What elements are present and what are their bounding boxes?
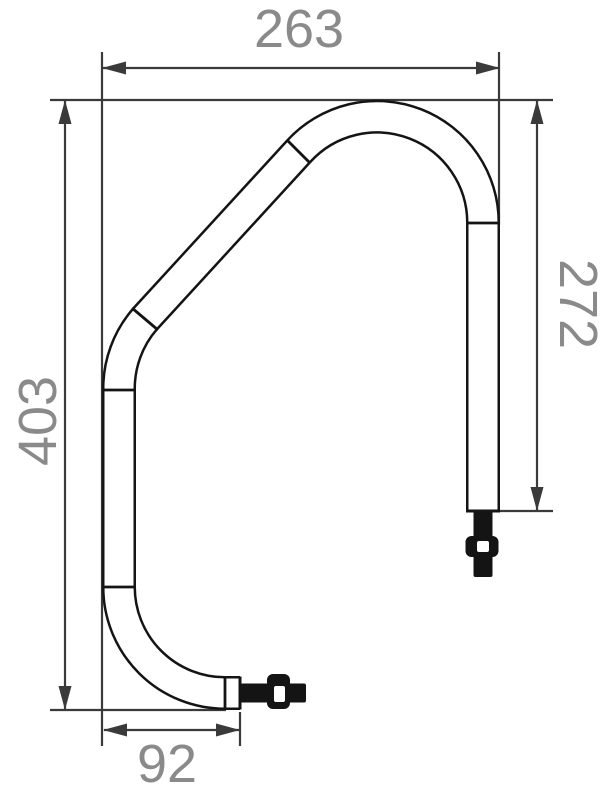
handrail-drawing-canvas: 263 403 272 92 xyxy=(0,0,606,800)
dimension-labels: 263 403 272 92 xyxy=(8,0,606,794)
mounting-bolt-bottom xyxy=(240,674,306,709)
dimension-label-right-height: 272 xyxy=(548,259,606,349)
arrowhead-left-up-icon xyxy=(59,100,72,124)
technical-drawing-page: 263 403 272 92 xyxy=(0,0,606,800)
bolt-nut-facet-bottom xyxy=(274,686,285,702)
bolt-nut-facet-right xyxy=(477,541,489,552)
tube-outer-outline xyxy=(119,117,483,693)
arrowhead-top-right-icon xyxy=(476,62,500,75)
arrowhead-left-down-icon xyxy=(59,686,72,710)
arrowhead-right-up-icon xyxy=(531,100,544,124)
dimension-label-bottom-width: 92 xyxy=(137,734,197,794)
tube-inner-fill xyxy=(119,117,483,693)
arrowhead-bottom-left-icon xyxy=(103,724,127,737)
arrowhead-top-left-icon xyxy=(102,62,126,75)
arrowhead-bottom-right-icon xyxy=(216,724,240,737)
dimension-label-left-height: 403 xyxy=(8,376,68,466)
mounting-bolt-right xyxy=(466,511,499,577)
dimension-label-top-width: 263 xyxy=(254,0,344,59)
handrail-tube xyxy=(102,117,500,710)
tube-joint-lines xyxy=(102,140,500,709)
arrowhead-right-down-icon xyxy=(531,487,544,511)
